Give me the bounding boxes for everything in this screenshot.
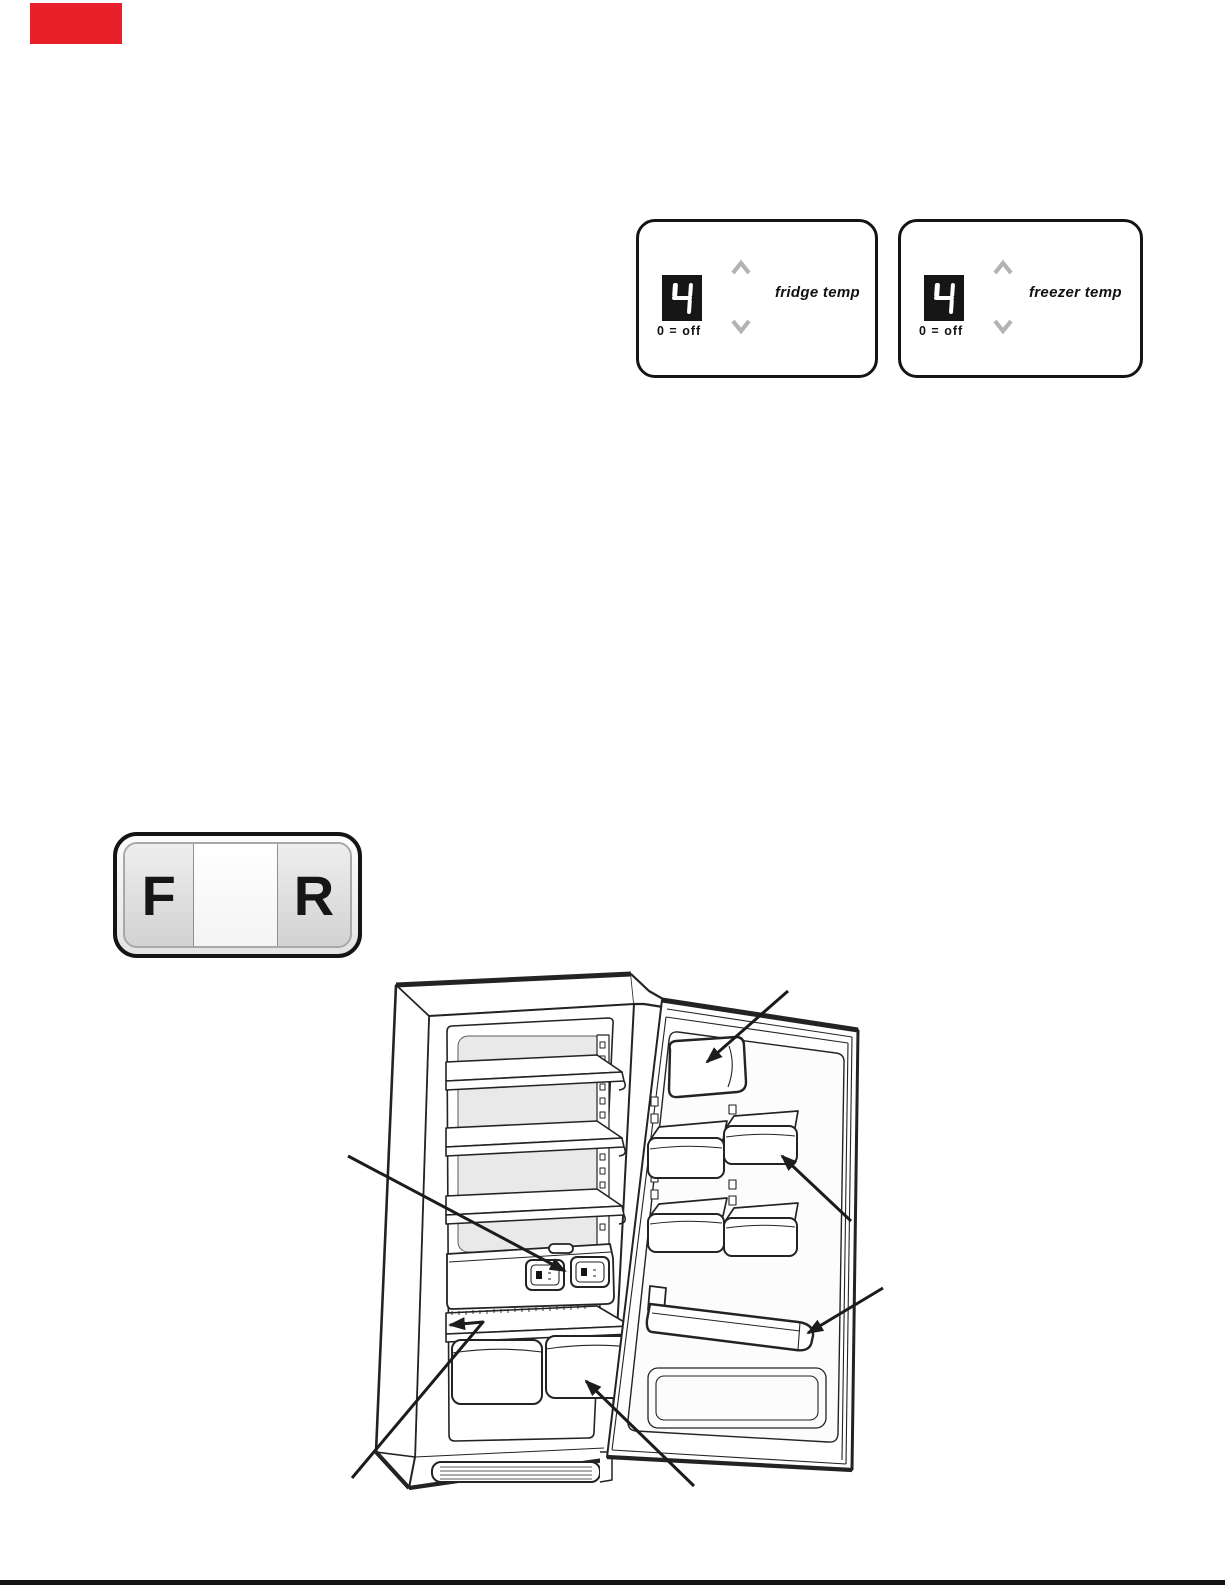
- model-selector-badge: F R: [113, 832, 362, 958]
- chevron-down-icon: [729, 318, 753, 335]
- badge-letter-r: R: [278, 844, 350, 946]
- model-selector-rocker: F R: [123, 842, 352, 948]
- zero-off-note: 0 = off: [657, 324, 717, 338]
- chevron-down-icon: [991, 318, 1015, 335]
- zero-off-note: 0 = off: [919, 324, 979, 338]
- crisper-area: [446, 1305, 638, 1404]
- fridge-temp-label: fridge temp: [775, 284, 860, 301]
- badge-blank-cell: [193, 844, 279, 946]
- fridge-temp-control-panel: 0 = off fridge temp: [636, 219, 878, 378]
- chevron-up-icon: [991, 259, 1015, 276]
- fridge-temp-display: [662, 275, 702, 321]
- freezer-temp-control-panel: 0 = off freezer temp: [898, 219, 1143, 378]
- manual-page: 0 = off fridge temp 0 = off freezer temp…: [0, 0, 1225, 1585]
- freezer-temp-display: [924, 275, 964, 321]
- red-corner-tab: [30, 3, 122, 44]
- freezer-temp-label: freezer temp: [1029, 284, 1122, 301]
- chevron-up-icon: [729, 259, 753, 276]
- badge-letter-f: F: [125, 844, 193, 946]
- interior-shelves: [446, 1055, 625, 1224]
- refrigerator-diagram: [325, 948, 920, 1513]
- seven-segment-digit: [922, 275, 965, 321]
- door: [607, 1000, 858, 1470]
- page-footer-rule: [0, 1580, 1225, 1585]
- seven-segment-digit: [660, 275, 703, 321]
